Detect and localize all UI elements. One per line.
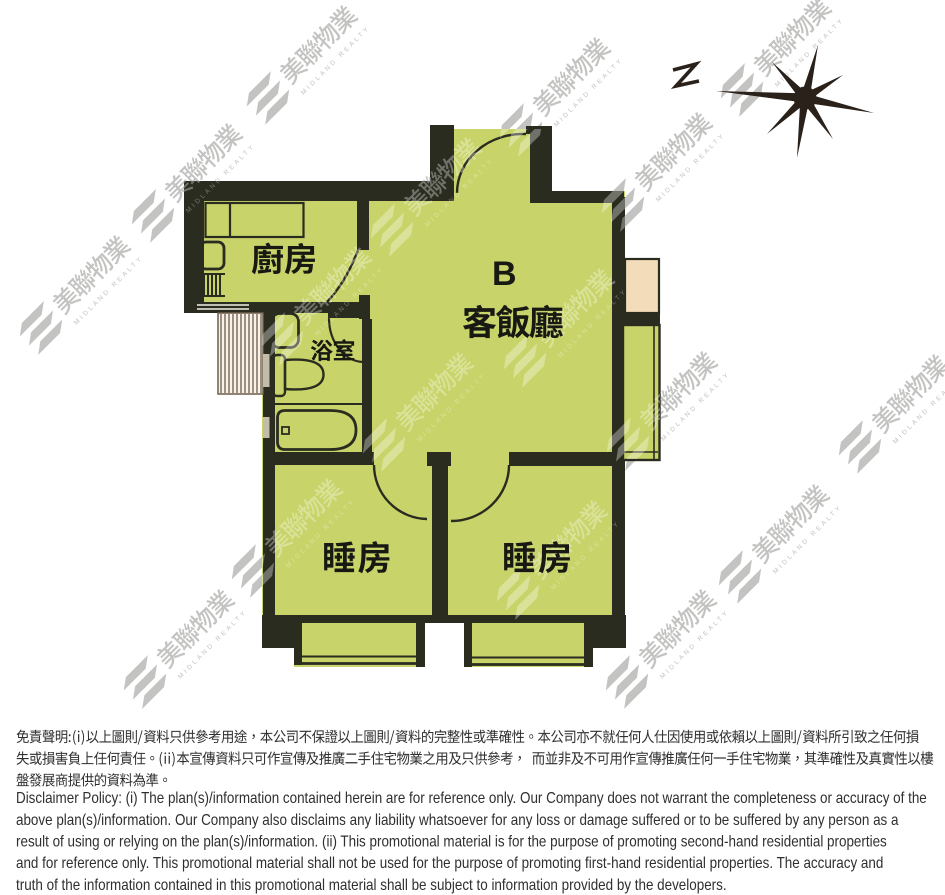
svg-text:result of using or relying on: result of using or relying on the plan(s… xyxy=(16,834,887,851)
svg-text:and for reference only. This p: and for reference only. This promotional… xyxy=(16,855,883,872)
svg-text:above plan(s)/information. Our: above plan(s)/information. Our Company a… xyxy=(16,812,899,829)
svg-text:truth of the information conta: truth of the information contained in th… xyxy=(16,877,727,894)
svg-text:B: B xyxy=(492,255,517,293)
svg-text:Disclaimer Policy: (i) The pla: Disclaimer Policy: (i) The plan(s)/infor… xyxy=(16,790,927,807)
